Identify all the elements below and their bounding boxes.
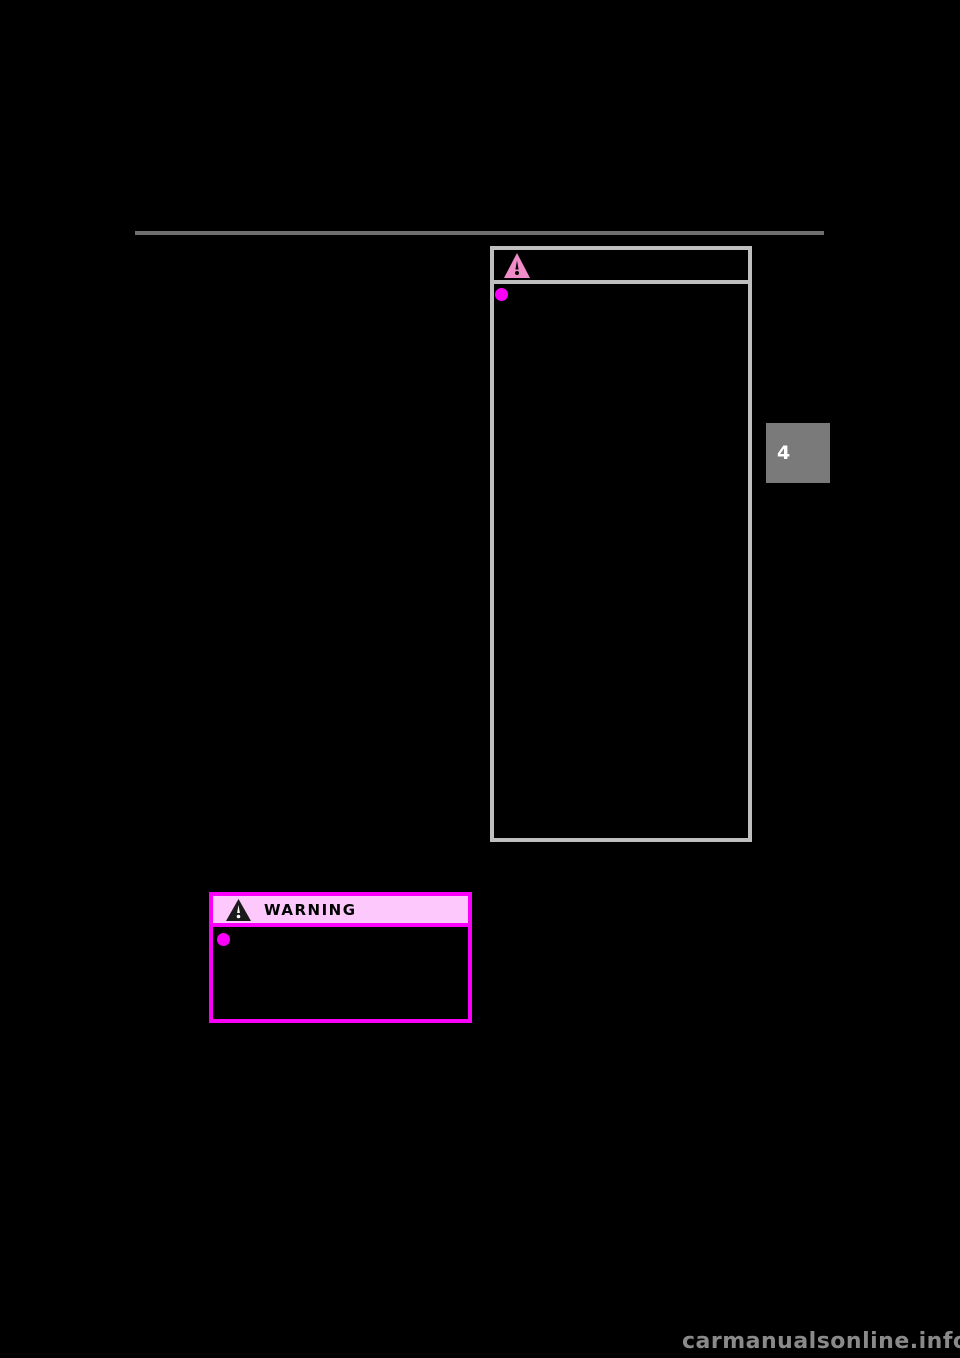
manual-page: 4 WARNING carmanualsonline.info — [0, 0, 960, 1358]
chapter-tab-number: 4 — [777, 442, 790, 464]
warning-title: WARNING — [264, 901, 357, 919]
watermark-text: carmanualsonline.info — [682, 1329, 960, 1354]
warning-box-header: WARNING — [213, 896, 468, 927]
page-header-rule — [135, 231, 824, 235]
warning-triangle-icon — [503, 252, 531, 279]
bullet-icon — [495, 288, 508, 301]
warning-triangle-icon — [226, 899, 251, 921]
caution-box — [490, 246, 752, 842]
chapter-tab: 4 — [766, 423, 830, 483]
bullet-icon — [217, 933, 230, 946]
warning-box: WARNING — [209, 892, 472, 1023]
caution-box-header — [494, 250, 748, 284]
